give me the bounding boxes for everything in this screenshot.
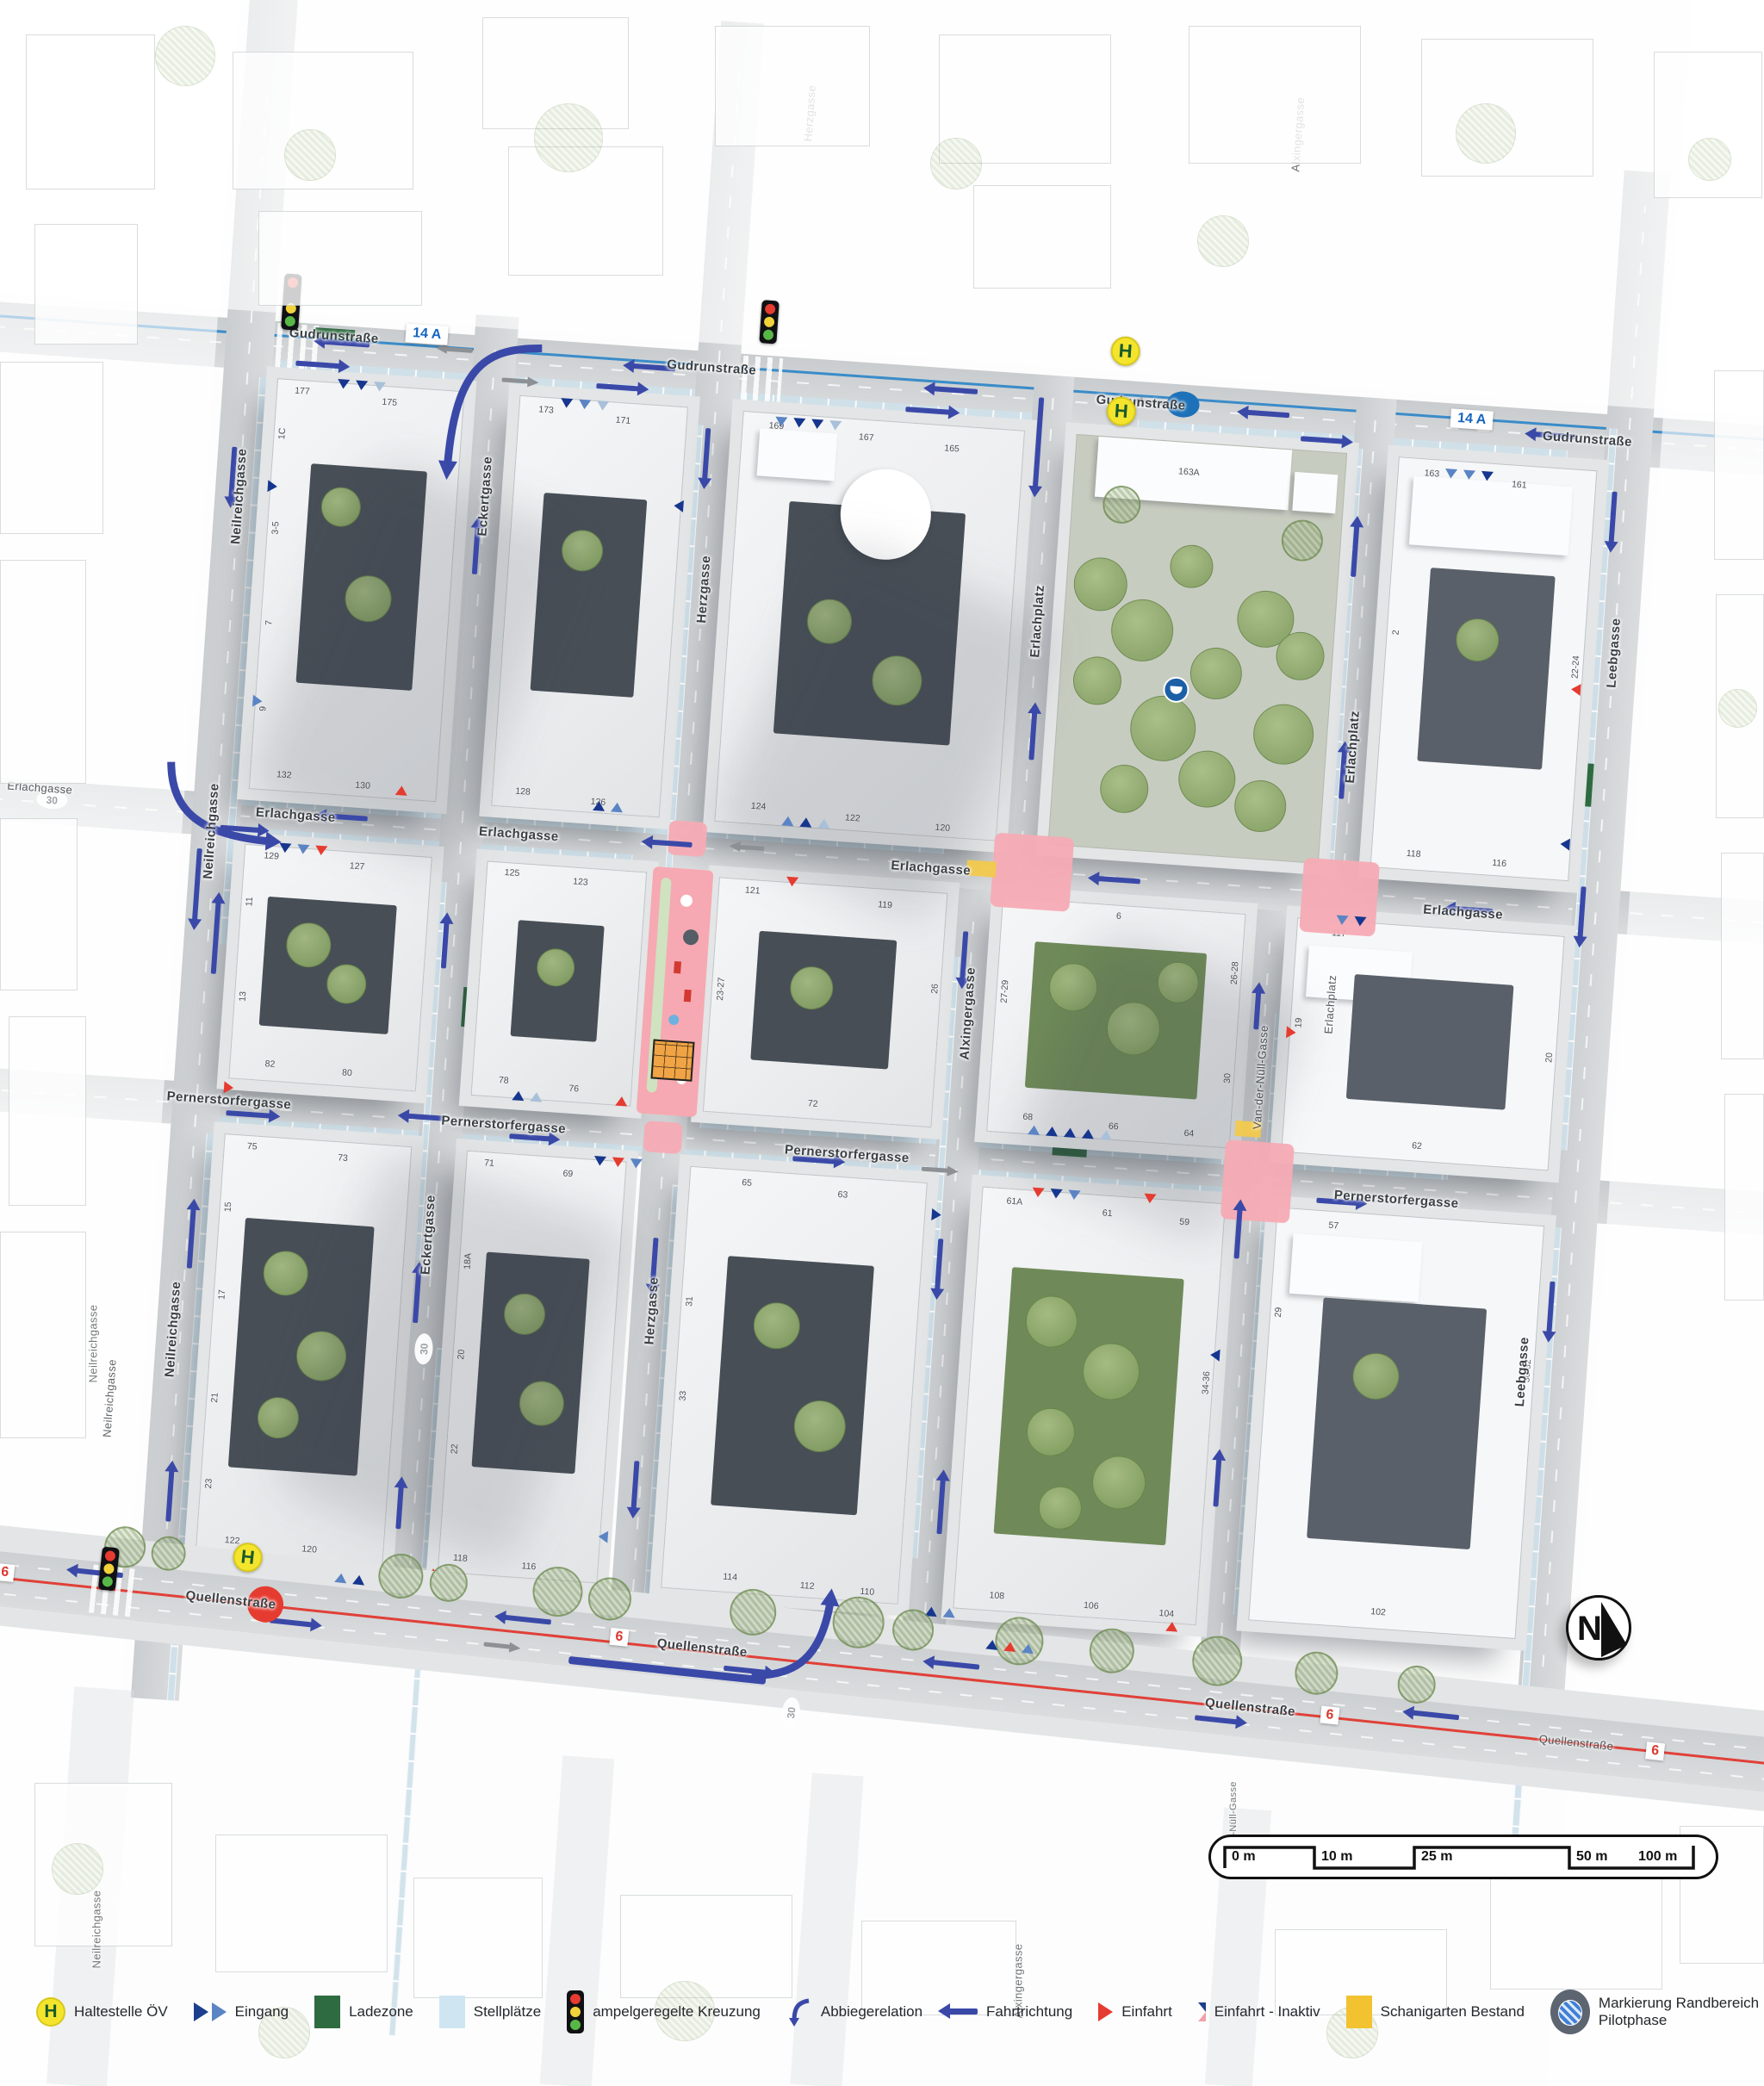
eingang-icon bbox=[596, 400, 609, 411]
ladezone-marker bbox=[461, 987, 471, 1027]
direction-arrow-icon bbox=[1412, 1710, 1459, 1721]
eingang-icon bbox=[337, 379, 350, 389]
tree-icon bbox=[1098, 763, 1150, 815]
pilot-zone-corner bbox=[668, 820, 708, 857]
outside-building bbox=[9, 1016, 86, 1206]
legend-item-stellplaetze: Stellplätze bbox=[439, 1996, 541, 2028]
legend-item-ampel: ampelgeregelte Kreuzung bbox=[567, 1990, 761, 2033]
north-arrow: N bbox=[1566, 1595, 1631, 1661]
outside-building bbox=[1189, 26, 1361, 164]
fahrtrichtung-icon bbox=[948, 2008, 978, 2015]
street-label: Neilreichgasse bbox=[87, 1305, 100, 1383]
eingang-icon bbox=[781, 816, 794, 826]
roof bbox=[1292, 472, 1338, 513]
outside-building bbox=[715, 26, 870, 146]
scale-label: 10 m bbox=[1321, 1849, 1352, 1865]
scale-label: 50 m bbox=[1576, 1849, 1607, 1865]
legend-item-randbereich: Markierung RandbereichPilotphase bbox=[1550, 1990, 1759, 2034]
direction-arrow-icon bbox=[270, 1617, 313, 1627]
tram-route-badge: 6 bbox=[1645, 1741, 1665, 1760]
eingang-icon bbox=[1022, 1643, 1034, 1654]
city-block: 125 123 78 76 bbox=[471, 861, 648, 1107]
scale-label: 25 m bbox=[1421, 1849, 1452, 1865]
eingang-icon bbox=[334, 1573, 347, 1583]
outside-building bbox=[26, 34, 155, 189]
ladezone-swatch bbox=[314, 1996, 340, 2028]
legend-item-schanigarten: Schanigarten Bestand bbox=[1346, 1996, 1525, 2028]
courtyard bbox=[1417, 568, 1555, 770]
roof bbox=[757, 428, 838, 481]
street-label: Quellenstraße bbox=[656, 1636, 748, 1661]
traffic-light-icon bbox=[759, 300, 779, 344]
eingang-icon bbox=[267, 480, 277, 493]
legend-item-fahrtrichtung: Fahrtrichtung bbox=[948, 2003, 1072, 2021]
eingang-icon bbox=[811, 419, 824, 430]
einfahrt-icon bbox=[1098, 2002, 1113, 2021]
einfahrt-inaktiv-icon bbox=[1198, 2002, 1206, 2021]
courtyard bbox=[259, 897, 397, 1034]
pilot-zone-intersection bbox=[990, 833, 1074, 912]
eingang-icon bbox=[611, 802, 624, 812]
legend-item-abbiegerelation: Abbiegerelation bbox=[786, 1997, 922, 2027]
eingang-icon bbox=[373, 382, 386, 392]
tram-route-badge: 6 bbox=[0, 1563, 15, 1582]
tree-icon bbox=[1072, 556, 1129, 612]
eingang-icon bbox=[793, 418, 806, 428]
pilot-zone-herzgasse bbox=[637, 866, 714, 1117]
ladezone-marker bbox=[1583, 763, 1593, 807]
map-screenshot: 177 175 132 130 1C 3-5 7 9 173 171 128 1… bbox=[0, 0, 1764, 2086]
eingang-icon bbox=[1064, 1127, 1077, 1138]
scale-label: 100 m bbox=[1638, 1849, 1677, 1865]
outside-building bbox=[0, 362, 103, 534]
eingang-icon bbox=[1354, 916, 1367, 927]
city-block: 117 62 19 20 bbox=[1281, 917, 1564, 1170]
legend-item-eingang: Eingang bbox=[194, 2002, 289, 2021]
planter-icon bbox=[682, 929, 699, 946]
eingang-icon bbox=[674, 500, 684, 512]
eingang-icon bbox=[943, 1608, 956, 1618]
legend-item-haltestelle: H Haltestelle ÖV bbox=[36, 1997, 168, 2027]
tree-icon bbox=[1456, 103, 1516, 164]
scale-label: 0 m bbox=[1232, 1849, 1256, 1865]
tree-icon bbox=[1688, 138, 1731, 181]
eingang-icon bbox=[1082, 1128, 1095, 1139]
eingang-icon bbox=[1046, 1127, 1059, 1137]
pilot-zone-intersection bbox=[1299, 858, 1380, 937]
tree-icon bbox=[1252, 702, 1316, 767]
eingang-icon bbox=[1560, 838, 1570, 851]
einfahrt-icon bbox=[1165, 1622, 1178, 1632]
eingang-icon bbox=[593, 801, 606, 811]
eingang-icon bbox=[1481, 471, 1494, 481]
outside-building bbox=[1721, 853, 1764, 1059]
eingang-icon bbox=[931, 1208, 941, 1221]
eingang-icon bbox=[829, 420, 842, 431]
legend: H Haltestelle ÖV Eingang Ladezone Stellp… bbox=[36, 1977, 1742, 2046]
tree-icon bbox=[1189, 646, 1244, 701]
bus-route-badge: 14 A bbox=[405, 323, 449, 345]
pilot-zone-corner bbox=[643, 1121, 683, 1154]
tree-icon bbox=[52, 1843, 103, 1895]
outside-building bbox=[34, 224, 138, 345]
park-erlachplatz: 163A bbox=[1048, 434, 1348, 864]
eingang-icon bbox=[512, 1090, 525, 1101]
eingang-icon bbox=[561, 398, 574, 408]
turn-relation-icon bbox=[744, 1579, 849, 1690]
eingang-icon bbox=[297, 844, 310, 854]
direction-arrow-icon bbox=[504, 1615, 551, 1625]
courtyard bbox=[994, 1267, 1184, 1545]
randbereich-icon bbox=[1550, 1990, 1590, 2034]
tree-icon bbox=[284, 129, 336, 181]
eingang-icon bbox=[1444, 469, 1457, 479]
direction-arrow-icon bbox=[483, 1642, 512, 1649]
haltestelle-icon: H bbox=[36, 1997, 65, 2027]
outside-building bbox=[1714, 370, 1764, 560]
courtyard bbox=[1307, 1297, 1487, 1549]
tree-icon bbox=[1197, 215, 1249, 267]
city-block: 61A 61 59 108 106 104 34-36 bbox=[953, 1187, 1226, 1626]
eingang-icon bbox=[279, 843, 292, 854]
einfahrt-icon bbox=[615, 1096, 628, 1107]
abbiegerelation-icon bbox=[786, 1997, 812, 2027]
eingang-icon bbox=[593, 1156, 606, 1166]
eingang-icon bbox=[1068, 1190, 1081, 1201]
einfahrt-icon bbox=[224, 1081, 234, 1094]
roof bbox=[1289, 1233, 1423, 1302]
ampel-icon bbox=[567, 1990, 584, 2033]
outside-building bbox=[1490, 1878, 1662, 1990]
eingang-icon bbox=[630, 1158, 643, 1169]
direction-arrow-icon bbox=[1195, 1715, 1238, 1724]
marking-dot bbox=[680, 894, 693, 907]
outside-building bbox=[1724, 1094, 1764, 1301]
pilot-zone-intersection bbox=[1221, 1139, 1295, 1223]
tree-icon bbox=[1177, 748, 1237, 809]
outside-building bbox=[0, 1232, 86, 1438]
city-block: 57 102 29 30-32 bbox=[1248, 1207, 1544, 1639]
eingang-icon bbox=[194, 2002, 227, 2021]
scale-bar: 0 m 10 m 25 m 50 m 100 m bbox=[1208, 1835, 1718, 1879]
eingang-icon bbox=[252, 695, 263, 708]
tree-icon bbox=[1233, 779, 1288, 834]
tree-icon bbox=[1071, 655, 1123, 707]
tree-icon bbox=[1109, 597, 1176, 663]
city-block: 65 63 114 112 110 31 33 bbox=[661, 1166, 928, 1605]
einfahrt-icon bbox=[395, 785, 408, 796]
outside-building bbox=[215, 1835, 388, 1972]
eingang-icon bbox=[1210, 1349, 1221, 1362]
tram-route-badge: 6 bbox=[1320, 1706, 1339, 1725]
furniture-icon bbox=[684, 990, 692, 1003]
marking-dot bbox=[668, 1015, 680, 1026]
legend-item-einfahrt: Einfahrt bbox=[1098, 2002, 1172, 2021]
outside-building bbox=[1421, 39, 1593, 177]
tree-icon bbox=[155, 26, 215, 86]
legend-item-einfahrt-inaktiv: Einfahrt - Inaktiv bbox=[1198, 2002, 1320, 2021]
north-needle-icon bbox=[1601, 1602, 1627, 1657]
courtyard bbox=[711, 1256, 874, 1515]
outside-building bbox=[0, 560, 86, 784]
eingang-icon bbox=[817, 818, 830, 829]
schanigarten bbox=[650, 1039, 694, 1081]
eingang-icon bbox=[1028, 1125, 1040, 1135]
eingang-icon bbox=[1463, 469, 1475, 480]
bus-route-badge: 14 A bbox=[1450, 408, 1494, 430]
stellplaetze-swatch bbox=[439, 1996, 465, 2028]
tram-route-badge: 6 bbox=[609, 1628, 629, 1647]
tree-icon bbox=[930, 138, 982, 189]
street-label: Neilreichgasse bbox=[90, 1890, 103, 1969]
legend-item-ladezone: Ladezone bbox=[314, 1996, 413, 2028]
eingang-icon bbox=[985, 1639, 998, 1649]
courtyard bbox=[1346, 974, 1514, 1110]
eingang-icon bbox=[355, 381, 368, 391]
eingang-icon bbox=[530, 1092, 543, 1102]
eingang-icon bbox=[799, 817, 812, 828]
tree-icon bbox=[1128, 693, 1198, 763]
city-block: 163 161 118 116 2 22-24 bbox=[1370, 456, 1598, 881]
eingang-icon bbox=[1050, 1189, 1063, 1199]
direction-arrow-icon bbox=[932, 1660, 979, 1670]
outside-building bbox=[973, 185, 1111, 289]
eingang-icon bbox=[579, 400, 592, 410]
einfahrt-icon bbox=[1571, 683, 1581, 696]
outside-building bbox=[0, 818, 78, 990]
north-label: N bbox=[1577, 1610, 1602, 1648]
outside-building bbox=[258, 211, 422, 306]
tree-icon bbox=[1718, 689, 1757, 728]
tree-icon bbox=[1169, 543, 1214, 589]
tree-icon bbox=[1280, 518, 1324, 562]
einfahrt-icon bbox=[1144, 1194, 1157, 1204]
einfahrt-icon bbox=[1003, 1642, 1016, 1652]
einfahrt-icon bbox=[612, 1157, 624, 1167]
tree-icon bbox=[534, 103, 603, 172]
einfahrt-icon bbox=[315, 846, 328, 856]
street-label: Quellenstraße bbox=[1538, 1732, 1614, 1753]
city-block: 129 127 82 80 11 13 bbox=[228, 844, 432, 1092]
einfahrt-icon bbox=[1286, 1026, 1296, 1039]
einfahrt-icon bbox=[786, 877, 798, 887]
eingang-icon bbox=[1100, 1130, 1113, 1140]
eingang-icon bbox=[1336, 915, 1349, 925]
einfahrt-icon bbox=[1032, 1188, 1045, 1198]
eingang-icon bbox=[598, 1530, 608, 1543]
schanigarten-swatch bbox=[1346, 1996, 1372, 2028]
roof bbox=[1409, 475, 1573, 556]
furniture-icon bbox=[674, 961, 681, 974]
eingang-icon bbox=[775, 417, 788, 427]
eingang-icon bbox=[352, 1574, 365, 1585]
